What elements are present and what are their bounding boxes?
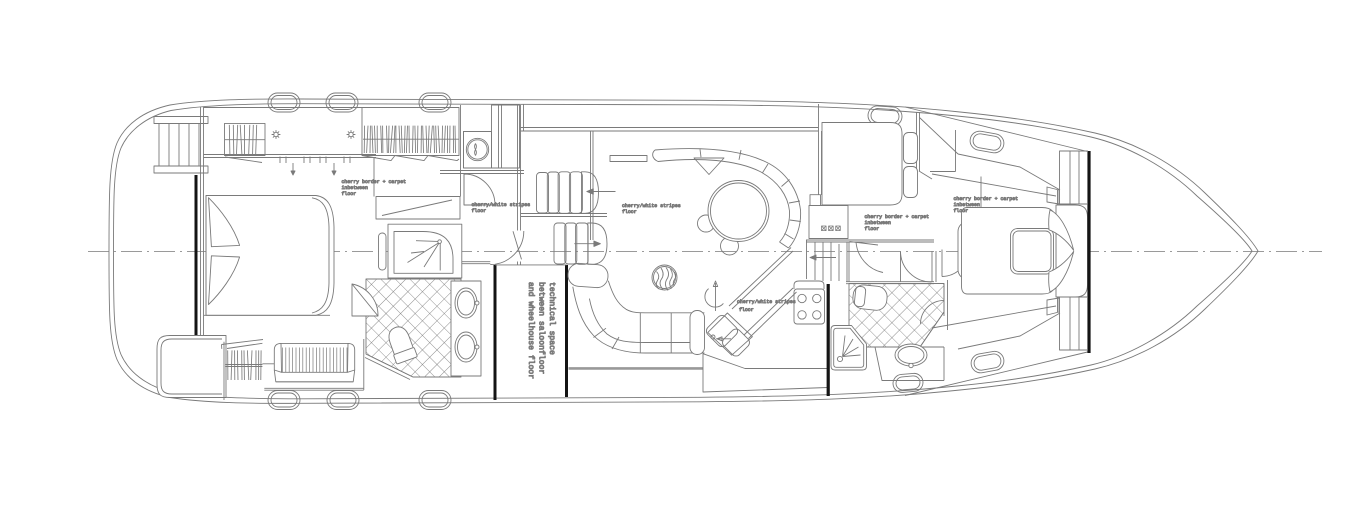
- svg-text:cherry/white stripes: cherry/white stripes: [472, 202, 531, 208]
- svg-text:cherry/white stripes: cherry/white stripes: [622, 203, 681, 209]
- svg-text:cherry border + carpet: cherry border + carpet: [342, 179, 407, 185]
- svg-text:inbetween: inbetween: [954, 202, 980, 208]
- svg-text:floor: floor: [954, 208, 969, 214]
- svg-text:cherry border + carpet: cherry border + carpet: [954, 196, 1019, 202]
- svg-text:floor: floor: [739, 307, 754, 313]
- svg-text:floor: floor: [472, 208, 487, 214]
- svg-text:inbetween: inbetween: [865, 220, 891, 226]
- svg-text:floor: floor: [342, 191, 357, 197]
- svg-text:floor: floor: [622, 209, 637, 215]
- svg-text:floor: floor: [865, 226, 880, 232]
- svg-text:cherry/white stripes: cherry/white stripes: [737, 299, 796, 305]
- svg-text:cherry border + carpet: cherry border + carpet: [865, 214, 930, 220]
- svg-text:inbetween: inbetween: [342, 185, 368, 191]
